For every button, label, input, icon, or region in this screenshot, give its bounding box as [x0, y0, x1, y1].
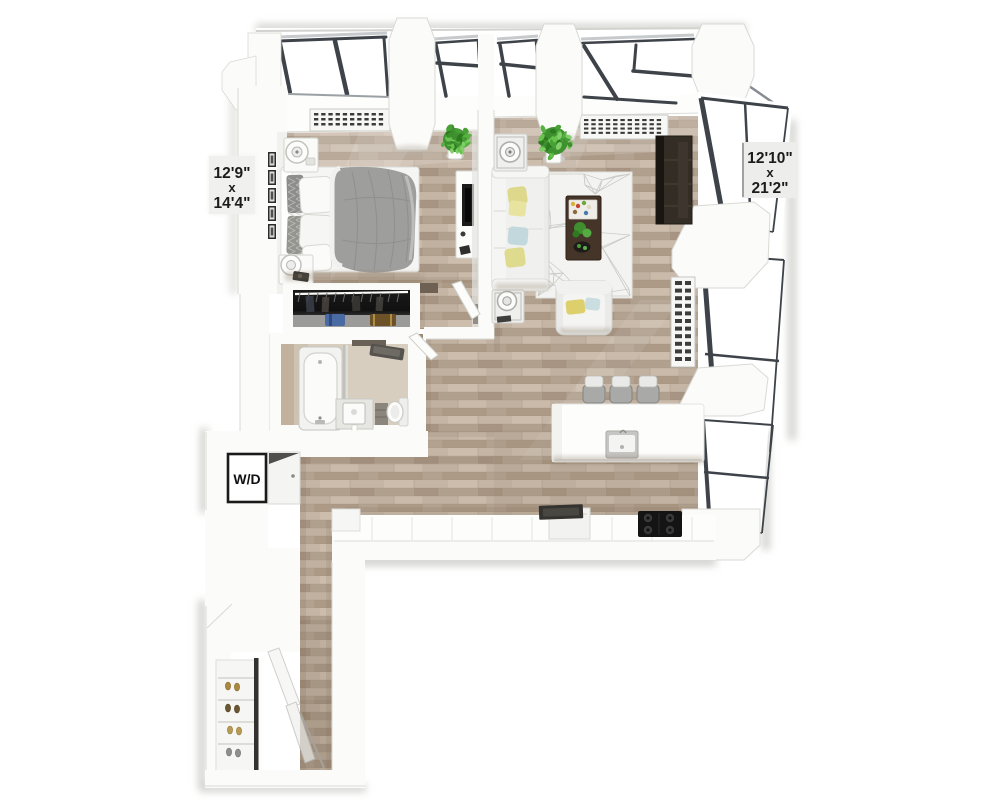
svg-text:14'4": 14'4": [214, 195, 251, 212]
svg-text:x: x: [766, 165, 774, 180]
svg-text:W/D: W/D: [233, 471, 260, 487]
svg-text:21'2": 21'2": [752, 180, 789, 197]
svg-text:x: x: [228, 180, 236, 195]
